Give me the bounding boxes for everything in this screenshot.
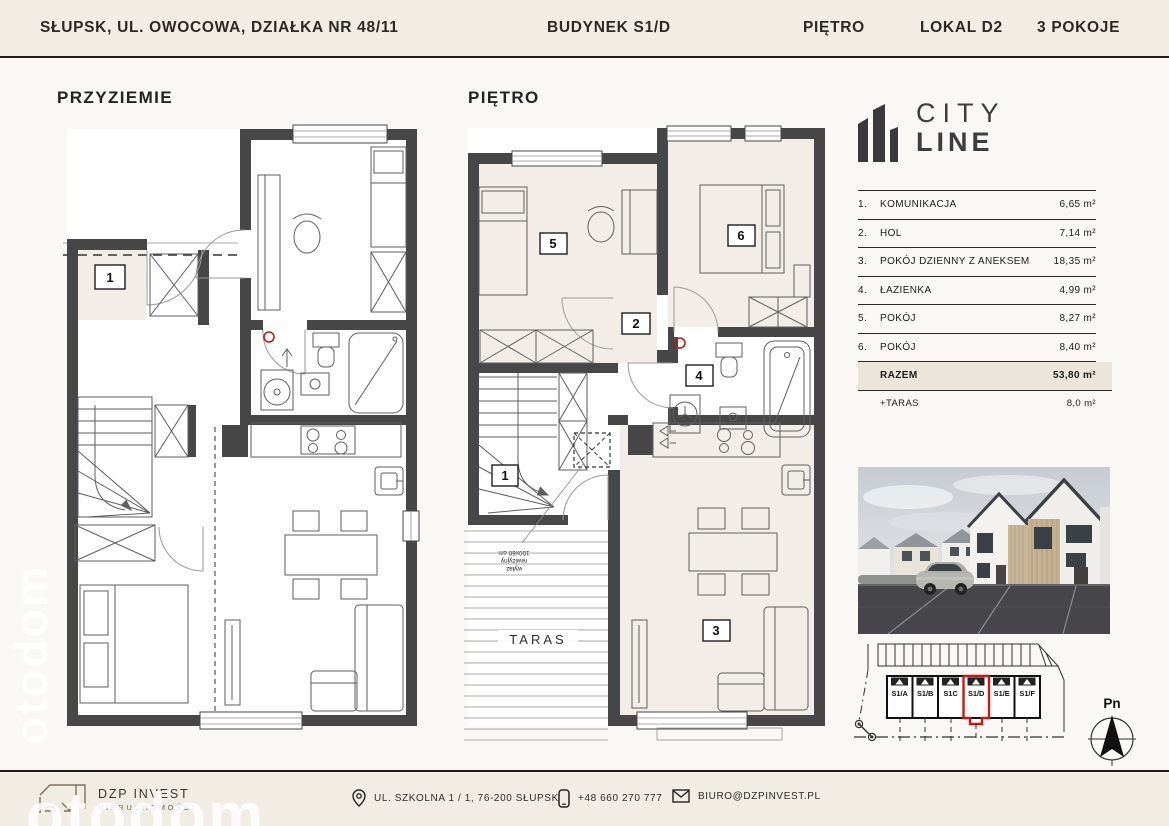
area-unit: m² xyxy=(1083,370,1096,381)
city-buildings-icon xyxy=(858,100,904,162)
location-pin-icon xyxy=(352,789,366,807)
unit-label: S1/D xyxy=(968,689,985,698)
total-label: RAZEM xyxy=(858,370,1053,381)
compass-icon: Pn xyxy=(1088,696,1136,766)
room-area: 6,65 xyxy=(1059,199,1080,210)
office-phone-text: +48 660 270 777 xyxy=(578,793,662,804)
unit-label: S1C xyxy=(944,689,959,698)
rooms-count-label: 3 POKOJE xyxy=(1037,19,1120,37)
room-area: 8,27 xyxy=(1059,313,1080,324)
table-row: 1. KOMUNIKACJA 6,65m² xyxy=(858,191,1096,220)
row-number: 4. xyxy=(858,285,880,296)
table-row: 2. HOL 7,14m² xyxy=(858,220,1096,249)
svg-text:rewizyjny: rewizyjny xyxy=(500,557,527,564)
table-row: 5. POKÓJ 8,27m² xyxy=(858,305,1096,334)
room-name: POKÓJ xyxy=(880,342,1059,353)
row-number: 2. xyxy=(858,228,880,239)
room-name: ŁAZIENKA xyxy=(880,285,1059,296)
room-name: KOMUNIKACJA xyxy=(880,199,1059,210)
area-unit: m² xyxy=(1084,398,1096,409)
room-number: 6 xyxy=(737,228,744,243)
office-email-text: BIURO@DZPINVEST.PL xyxy=(698,791,821,802)
office-address-text: UL. SZKOLNA 1 / 1, 76-200 SŁUPSK xyxy=(374,793,559,804)
total-row: RAZEM 53,80m² xyxy=(858,362,1112,391)
brand-logo: CITY LINE xyxy=(858,98,1120,170)
terrace-label: +TARAS xyxy=(858,398,1067,409)
area-unit: m² xyxy=(1084,285,1096,296)
unit-label: S1/F xyxy=(1019,689,1035,698)
svg-text:wyłaz: wyłaz xyxy=(506,565,523,572)
unit-label: S1/B xyxy=(917,689,933,698)
plan-title-ground: PRZYZIEMIE xyxy=(57,88,173,108)
developer-name: DZP INVEST xyxy=(98,787,196,801)
area-unit: m² xyxy=(1084,313,1096,324)
header-bar: SŁUPSK, UL. OWOCOWA, DZIAŁKA NR 48/11 BU… xyxy=(0,0,1169,58)
terrace-row: +TARAS 8,0m² xyxy=(858,391,1096,417)
building-label: BUDYNEK S1/D xyxy=(547,19,671,37)
floorplan-pietro: 5 6 2 4 1 xyxy=(462,115,847,743)
room-area: 4,99 xyxy=(1059,285,1080,296)
watermark-vertical: otodom xyxy=(4,564,58,745)
phone-icon xyxy=(558,789,570,808)
terrace-area: 8,0 xyxy=(1067,398,1081,409)
room-area: 18,35 xyxy=(1054,256,1081,267)
developer-subtitle: NIERUCHOMOŚCI xyxy=(98,803,196,812)
room-number: 1 xyxy=(106,270,113,285)
table-row: 4. ŁAZIENKA 4,99m² xyxy=(858,277,1096,306)
site-plan: S1/A S1/B S1C S1/D S1/E S1/F Pn xyxy=(850,640,1150,770)
office-address: UL. SZKOLNA 1 / 1, 76-200 SŁUPSK xyxy=(352,789,559,807)
total-area: 53,80 xyxy=(1053,370,1080,381)
row-number: 6. xyxy=(858,342,880,353)
area-unit: m² xyxy=(1084,228,1096,239)
unit-label: LOKAL D2 xyxy=(920,19,1003,37)
unit-label: S1/A xyxy=(891,689,908,698)
office-email: BIURO@DZPINVEST.PL xyxy=(672,789,821,803)
row-number: 3. xyxy=(858,256,880,267)
unit-label: S1/E xyxy=(994,689,1010,698)
brand-name-bottom: LINE xyxy=(916,127,994,157)
envelope-icon xyxy=(672,789,690,803)
brand-name-top: CITY xyxy=(916,98,1006,128)
compass-north-label: Pn xyxy=(1103,696,1120,711)
room-number: 3 xyxy=(712,623,719,638)
room-number: 1 xyxy=(501,468,508,483)
room-area: 8,40 xyxy=(1059,342,1080,353)
plan-title-upper: PIĘTRO xyxy=(468,88,540,108)
area-unit: m² xyxy=(1084,199,1096,210)
office-phone: +48 660 270 777 xyxy=(558,789,662,808)
area-table: 1. KOMUNIKACJA 6,65m² 2. HOL 7,14m² 3. P… xyxy=(858,190,1096,417)
house-outline-icon xyxy=(36,781,90,817)
room-area: 7,14 xyxy=(1059,228,1080,239)
floor-label: PIĘTRO xyxy=(803,19,865,37)
developer-logo: DZP INVEST NIERUCHOMOŚCI xyxy=(36,781,196,817)
room-number: 5 xyxy=(549,236,556,251)
footer-bar: DZP INVEST NIERUCHOMOŚCI UL. SZKOLNA 1 /… xyxy=(0,770,1169,826)
room-number: 4 xyxy=(695,368,703,383)
table-row: 3. POKÓJ DZIENNY Z ANEKSEM 18,35m² xyxy=(858,248,1096,277)
table-row: 6. POKÓJ 8,40m² xyxy=(858,334,1096,363)
row-number: 1. xyxy=(858,199,880,210)
room-number: 2 xyxy=(632,316,639,331)
flyer-page: SŁUPSK, UL. OWOCOWA, DZIAŁKA NR 48/11 BU… xyxy=(0,0,1169,826)
area-unit: m² xyxy=(1084,256,1096,267)
area-unit: m² xyxy=(1084,342,1096,353)
room-name: HOL xyxy=(880,228,1059,239)
building-render-photo xyxy=(858,467,1110,634)
terrace-label: TARAS xyxy=(509,632,566,647)
room-name: POKÓJ xyxy=(880,313,1059,324)
svg-text:100x60 cm: 100x60 cm xyxy=(498,549,529,556)
room-name: POKÓJ DZIENNY Z ANEKSEM xyxy=(880,256,1054,267)
unit-row: S1/A S1/B S1C S1/D S1/E S1/F xyxy=(887,676,1040,724)
row-number: 5. xyxy=(858,313,880,324)
floorplan-przyziemie: 1 xyxy=(55,115,445,743)
site-address: SŁUPSK, UL. OWOCOWA, DZIAŁKA NR 48/11 xyxy=(40,19,399,37)
